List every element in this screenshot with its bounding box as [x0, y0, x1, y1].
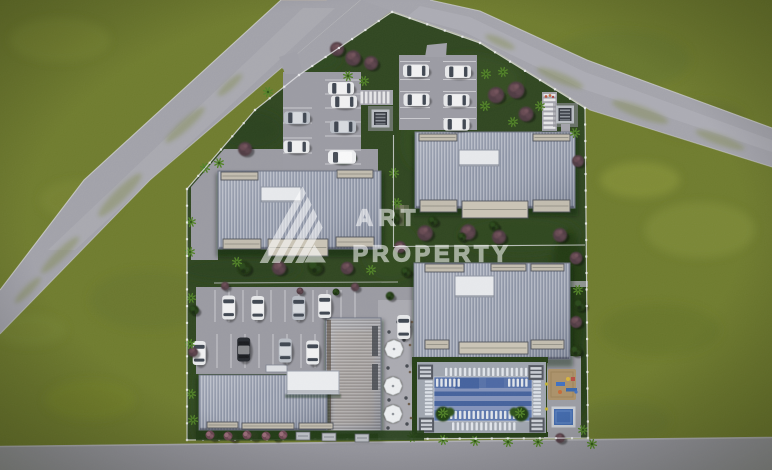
svg-text:ART: ART: [356, 205, 421, 231]
svg-text:PROPERTY: PROPERTY: [353, 241, 512, 267]
